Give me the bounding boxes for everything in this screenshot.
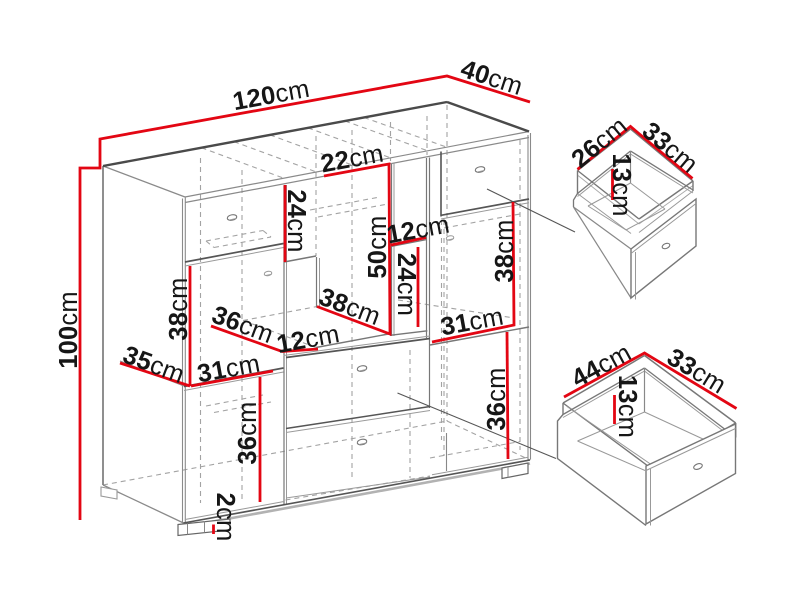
svg-text:2cm: 2cm bbox=[211, 493, 239, 542]
svg-text:24cm: 24cm bbox=[392, 253, 420, 316]
svg-text:13cm: 13cm bbox=[607, 153, 635, 216]
svg-text:38cm: 38cm bbox=[491, 219, 519, 282]
svg-text:24cm: 24cm bbox=[282, 189, 310, 252]
svg-text:36cm: 36cm bbox=[483, 367, 511, 430]
svg-text:36cm: 36cm bbox=[234, 401, 262, 464]
svg-text:38cm: 38cm bbox=[165, 277, 193, 340]
svg-text:13cm: 13cm bbox=[613, 375, 641, 438]
svg-text:100cm: 100cm bbox=[55, 291, 83, 369]
